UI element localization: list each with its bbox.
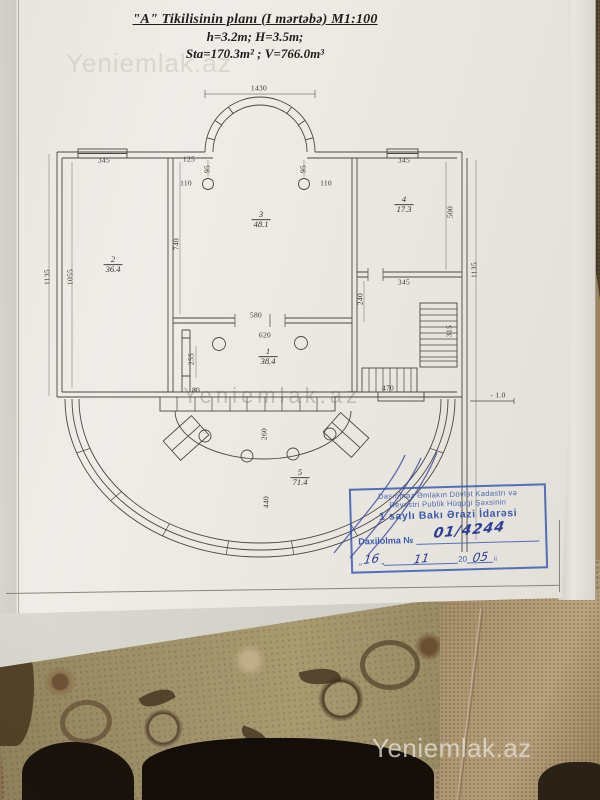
carpet-ring-motif <box>360 640 420 690</box>
shadow-blob <box>538 762 600 800</box>
sheet-frame-right-line <box>559 520 560 592</box>
staircases <box>362 303 457 401</box>
watermark-bottom: Yeniemlak.az <box>372 733 532 764</box>
main-paper-sheet: Yeniemlak.az Yeniemlak.az "A" Tikilisini… <box>0 0 576 616</box>
pen-strokes <box>300 425 570 585</box>
photo-of-floor-plan-document: Yeniemlak.az Yeniemlak.az "A" Tikilisini… <box>0 0 600 800</box>
columns <box>203 179 310 351</box>
